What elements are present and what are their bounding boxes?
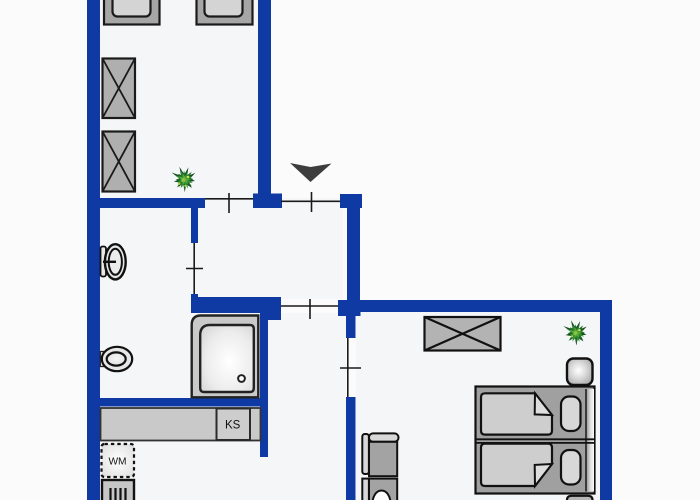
svg-text:KS: KS — [225, 420, 241, 432]
svg-text:WM: WM — [108, 456, 126, 467]
